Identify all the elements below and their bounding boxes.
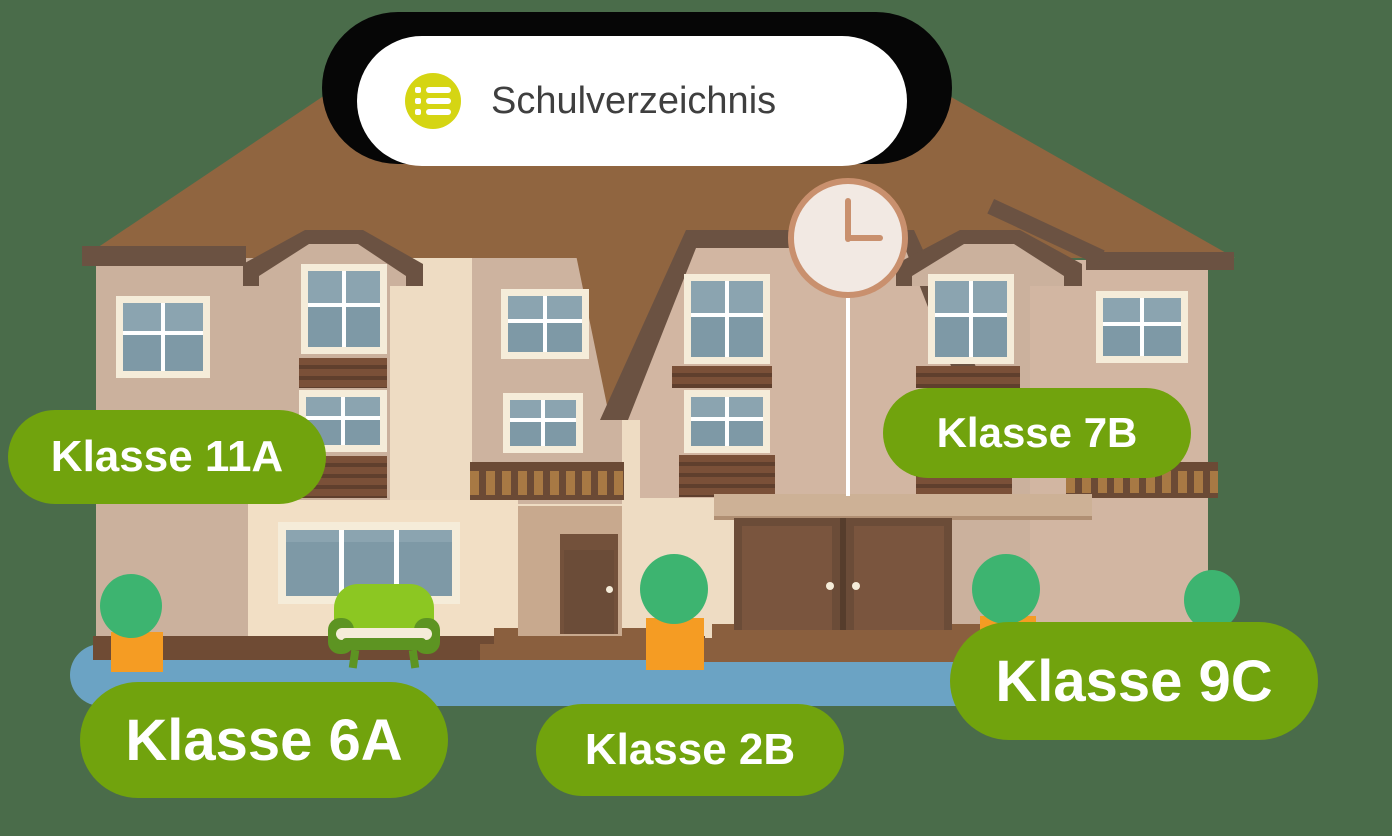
single-door — [560, 534, 618, 634]
class-label-2b[interactable]: Klasse 2B — [536, 704, 844, 796]
header-pill: Schulverzeichnis — [357, 36, 907, 166]
door-knob — [852, 582, 860, 590]
clock-drop-line — [846, 298, 850, 496]
steps-left-block — [480, 644, 496, 660]
bush — [1184, 570, 1240, 630]
sofa — [328, 584, 440, 670]
window — [684, 274, 770, 364]
spandrel-panel — [672, 366, 772, 388]
plant-pot — [646, 618, 704, 670]
door-knob — [606, 586, 613, 593]
window — [116, 296, 210, 378]
window — [501, 289, 589, 359]
door-leaf — [846, 518, 952, 630]
roof-fascia-left — [82, 246, 246, 266]
window — [503, 393, 583, 453]
balcony-balustrade — [470, 462, 624, 500]
door-knob — [826, 582, 834, 590]
class-label-9c[interactable]: Klasse 9C — [950, 622, 1318, 740]
bush — [100, 574, 162, 638]
class-label-11a[interactable]: Klasse 11A — [8, 410, 326, 504]
window — [301, 264, 387, 354]
plant-pot — [111, 632, 163, 672]
clock-hand-hour — [845, 235, 883, 241]
school-directory-screen: Schulverzeichnis Klasse 11A Klasse 7B Kl… — [0, 0, 1392, 836]
page-title: Schulverzeichnis — [491, 80, 776, 123]
bush — [972, 554, 1040, 624]
door-leaf — [734, 518, 840, 630]
window — [684, 390, 770, 453]
window — [1096, 291, 1188, 363]
window — [928, 274, 1014, 364]
roof-fascia-right — [1086, 252, 1234, 270]
double-door — [734, 518, 952, 630]
clock — [788, 178, 908, 298]
class-label-6a[interactable]: Klasse 6A — [80, 682, 448, 798]
spandrel-panel — [916, 366, 1020, 388]
spandrel-panel — [299, 358, 387, 388]
porch-lintel — [714, 494, 1092, 520]
list-icon — [405, 73, 461, 129]
class-label-7b[interactable]: Klasse 7B — [883, 388, 1191, 478]
bush — [640, 554, 708, 624]
spandrel-panel — [679, 455, 775, 497]
